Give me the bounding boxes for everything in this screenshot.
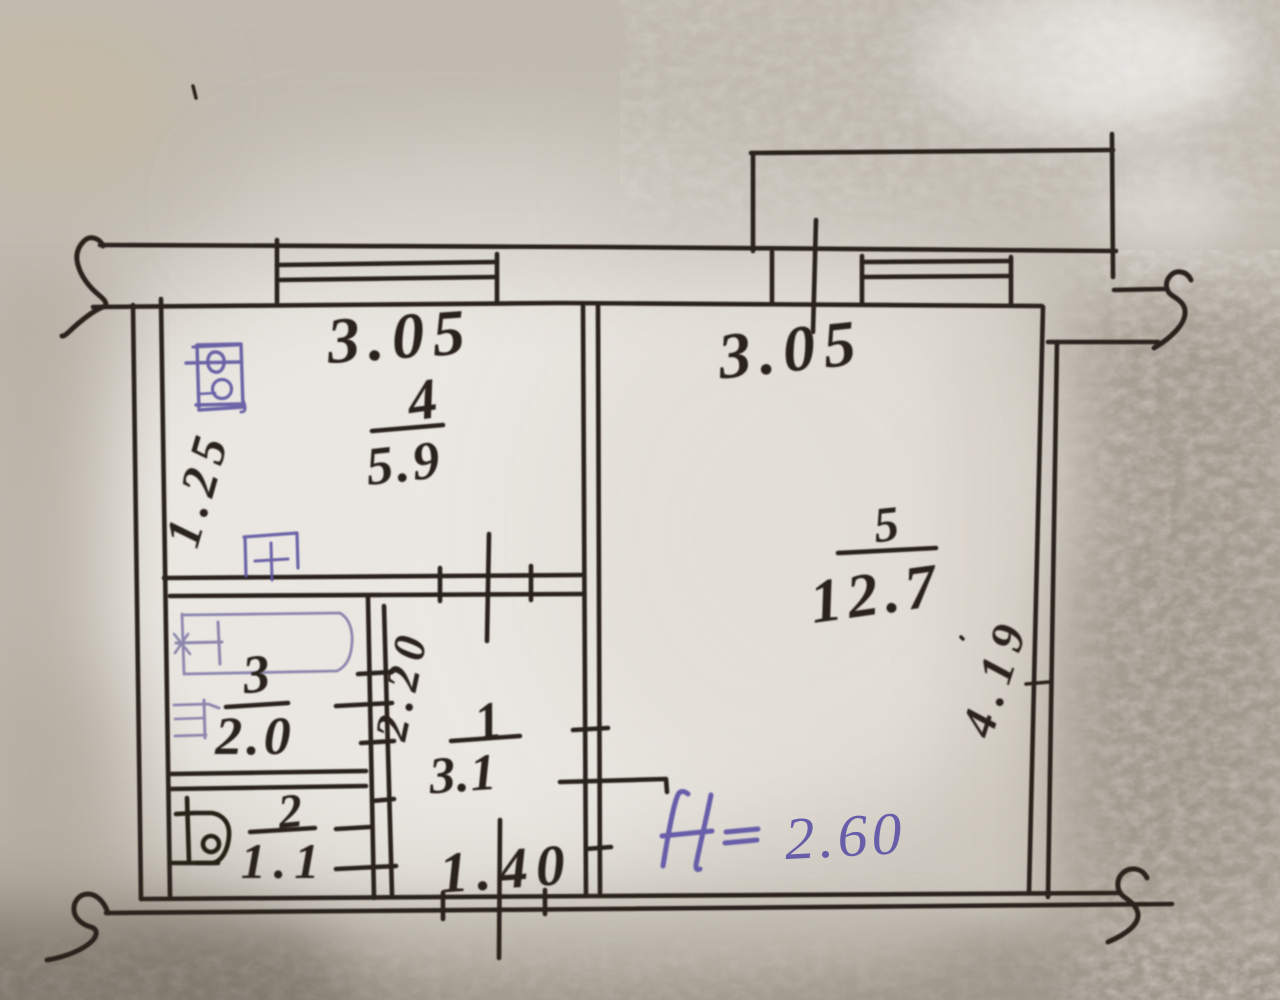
svg-text:1.1: 1.1 [241, 833, 328, 889]
svg-text:2.0: 2.0 [214, 706, 295, 766]
svg-text:3.1: 3.1 [426, 744, 499, 806]
svg-text:3.05: 3.05 [714, 307, 867, 394]
svg-text:5.9: 5.9 [363, 429, 445, 497]
svg-text:2.60: 2.60 [783, 800, 907, 872]
svg-text:3.05: 3.05 [324, 296, 475, 378]
svg-text:1.40: 1.40 [437, 831, 575, 905]
